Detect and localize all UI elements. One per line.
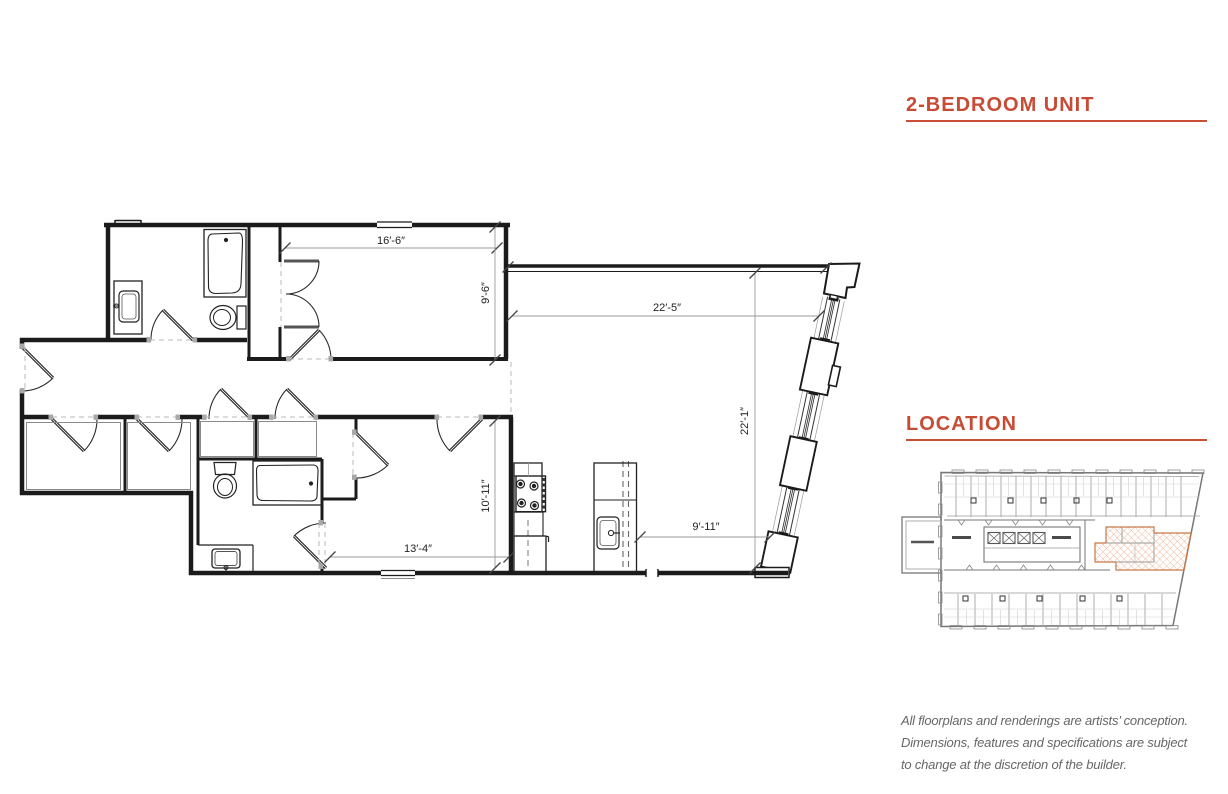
svg-text:16′-6″: 16′-6″	[377, 235, 405, 247]
svg-text:22′-5″: 22′-5″	[653, 302, 681, 314]
svg-text:13′-4″: 13′-4″	[404, 543, 432, 555]
svg-text:9′-11″: 9′-11″	[692, 521, 719, 533]
svg-text:9′-6″: 9′-6″	[480, 282, 492, 304]
svg-text:10′-11″: 10′-11″	[480, 479, 492, 512]
svg-text:22′-1″: 22′-1″	[739, 407, 751, 435]
